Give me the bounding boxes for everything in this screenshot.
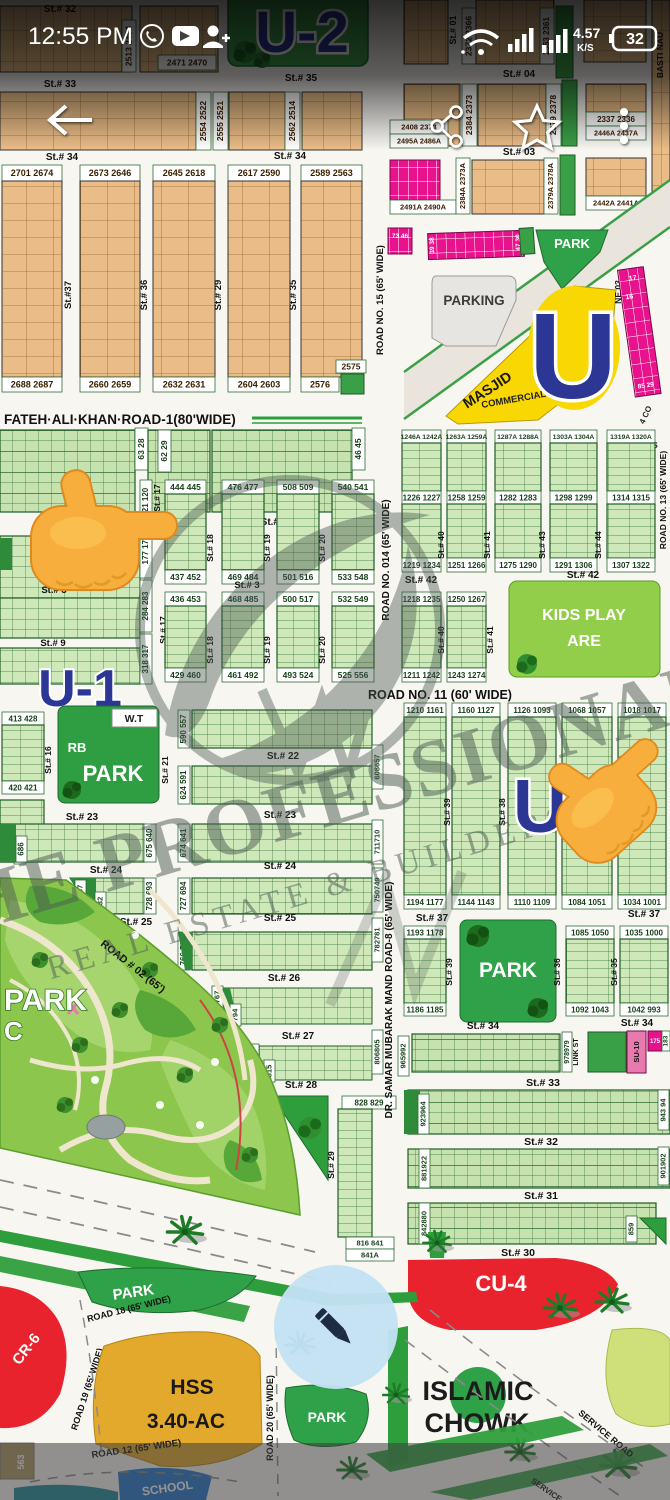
svg-text:St.# 33: St.# 33 <box>526 1077 560 1089</box>
svg-text:St.# 44: St.# 44 <box>593 531 603 559</box>
svg-text:1282 1283: 1282 1283 <box>499 493 537 502</box>
svg-text:SU-10: SU-10 <box>632 1041 641 1062</box>
svg-text:1085 1050: 1085 1050 <box>571 928 609 937</box>
svg-text:ROAD NO. 15 (65' WIDE): ROAD NO. 15 (65' WIDE) <box>375 245 386 355</box>
svg-text:St.# 36: St.# 36 <box>552 958 562 986</box>
svg-text:FATEH·ALI·KHAN·ROAD-1(80'WIDE): FATEH·ALI·KHAN·ROAD-1(80'WIDE) <box>4 412 236 427</box>
svg-text:St.# 42: St.# 42 <box>567 570 600 581</box>
svg-text:St.# 21: St.# 21 <box>160 756 170 784</box>
svg-text:St.#37: St.#37 <box>63 281 74 309</box>
svg-text:2673 2646: 2673 2646 <box>89 168 132 178</box>
svg-text:1034 1001: 1034 1001 <box>623 898 661 907</box>
svg-text:St.# 17: St.# 17 <box>152 484 162 512</box>
svg-text:PARK: PARK <box>479 959 537 982</box>
svg-text:LINK ST: LINK ST <box>573 1038 580 1066</box>
svg-text:PARK: PARK <box>554 236 590 251</box>
svg-text:St.# 39: St.# 39 <box>444 958 454 986</box>
svg-text:PARK: PARK <box>4 984 87 1017</box>
svg-text:1194 1177: 1194 1177 <box>407 898 444 907</box>
svg-text:63 28: 63 28 <box>136 438 146 460</box>
svg-text:21 120: 21 120 <box>141 487 150 512</box>
svg-text:ROAD NO. 13 (65' WIDE): ROAD NO. 13 (65' WIDE) <box>658 451 668 550</box>
svg-text:St.# 43: St.# 43 <box>537 531 547 559</box>
svg-text:1298 1299: 1298 1299 <box>555 493 593 502</box>
svg-text:16: 16 <box>625 293 634 301</box>
svg-text:St.# 34: St.# 34 <box>274 151 307 162</box>
svg-text:St.# 31: St.# 31 <box>524 1190 558 1202</box>
svg-text:1251 1266: 1251 1266 <box>448 561 486 570</box>
svg-text:39 38: 39 38 <box>429 237 437 254</box>
svg-text:K/S: K/S <box>577 43 594 54</box>
svg-text:12:55 PM: 12:55 PM <box>28 23 133 50</box>
svg-text:1291 1306: 1291 1306 <box>555 561 593 570</box>
svg-text:St.# 23: St.# 23 <box>66 812 99 823</box>
svg-text:841A: 841A <box>361 1251 380 1260</box>
svg-text:1243 1274: 1243 1274 <box>448 671 486 680</box>
svg-text:32: 32 <box>626 31 644 48</box>
svg-text:859: 859 <box>626 1223 635 1236</box>
svg-text:500 517: 500 517 <box>283 594 314 604</box>
svg-text:1042 993: 1042 993 <box>627 1005 661 1014</box>
svg-text:St.# 27: St.# 27 <box>282 1031 315 1042</box>
svg-text:St.# 30: St.# 30 <box>501 1247 535 1259</box>
svg-text:436 453: 436 453 <box>170 594 201 604</box>
svg-text:2632 2631: 2632 2631 <box>163 380 206 390</box>
svg-text:2604 2603: 2604 2603 <box>238 380 281 390</box>
svg-text:1307 1322: 1307 1322 <box>612 561 650 570</box>
svg-text:901902: 901902 <box>658 1153 667 1178</box>
svg-text:2617 2590: 2617 2590 <box>238 168 281 178</box>
svg-text:2589 2563: 2589 2563 <box>310 168 353 178</box>
svg-text:62 29: 62 29 <box>159 440 169 462</box>
svg-text:533 548: 533 548 <box>338 572 369 582</box>
svg-text:1263A 1259A: 1263A 1259A <box>446 434 488 441</box>
svg-text:St.# 35: St.# 35 <box>288 279 299 310</box>
svg-text:782781: 782781 <box>372 927 381 952</box>
svg-text:1035 1000: 1035 1000 <box>625 928 663 937</box>
svg-text:PARK: PARK <box>83 761 144 786</box>
svg-text:St.# 26: St.# 26 <box>268 973 301 984</box>
svg-text:St.# 34: St.# 34 <box>467 1021 500 1032</box>
svg-text:461 492: 461 492 <box>228 670 259 680</box>
svg-text:175: 175 <box>650 1039 661 1045</box>
svg-text:St.# 40: St.# 40 <box>436 531 446 559</box>
svg-text:46 45: 46 45 <box>353 438 363 460</box>
svg-text:St.# 34: St.# 34 <box>46 152 79 163</box>
svg-text:73 46: 73 46 <box>392 233 409 240</box>
svg-text:1250 1267: 1250 1267 <box>448 595 486 604</box>
svg-text:1186 1185: 1186 1185 <box>407 1005 444 1014</box>
svg-text:St.# 28: St.# 28 <box>285 1080 318 1091</box>
svg-text:St.# 35: St.# 35 <box>609 958 619 986</box>
svg-text:W.T: W.T <box>125 713 144 725</box>
svg-text:183: 183 <box>663 1035 670 1046</box>
svg-text:2491A 2490A: 2491A 2490A <box>400 203 447 212</box>
svg-text:842880: 842880 <box>419 1211 428 1236</box>
svg-text:420 421: 420 421 <box>9 783 38 792</box>
svg-text:ISLAMIC: ISLAMIC <box>423 1376 534 1406</box>
svg-text:828 829: 828 829 <box>355 1098 384 1107</box>
svg-text:St.# 32: St.# 32 <box>524 1136 558 1148</box>
svg-text:816 841: 816 841 <box>356 1239 383 1248</box>
svg-text:1303A 1304A: 1303A 1304A <box>553 434 595 441</box>
svg-text:2575: 2575 <box>342 362 361 372</box>
svg-text:943 94: 943 94 <box>658 1098 667 1122</box>
svg-text:1319A 1320A: 1319A 1320A <box>610 434 652 441</box>
svg-text:ARE: ARE <box>567 633 601 650</box>
svg-text:KIDS PLAY: KIDS PLAY <box>542 607 626 624</box>
svg-text:CU-4: CU-4 <box>475 1271 527 1296</box>
svg-text:St.# 19: St.# 19 <box>262 636 272 664</box>
svg-text:St.# 16: St.# 16 <box>43 746 53 774</box>
svg-text:2701 2674: 2701 2674 <box>11 168 54 178</box>
svg-text:3.40-AC: 3.40-AC <box>147 1410 225 1433</box>
svg-text:4.57: 4.57 <box>573 25 600 41</box>
svg-text:413 428: 413 428 <box>9 714 38 723</box>
svg-text:St.# 18: St.# 18 <box>205 534 215 562</box>
svg-text:1226 1227: 1226 1227 <box>403 493 441 502</box>
svg-text:2384A 2373A: 2384A 2373A <box>458 162 467 209</box>
svg-text:PARKING: PARKING <box>443 293 504 308</box>
svg-text:1144 1143: 1144 1143 <box>458 898 495 907</box>
svg-text:806805: 806805 <box>372 1039 381 1064</box>
svg-text:711710: 711710 <box>372 830 381 855</box>
svg-text:U: U <box>529 288 617 424</box>
svg-text:St.# 29: St.# 29 <box>213 280 224 311</box>
svg-text:978979: 978979 <box>564 1040 571 1063</box>
svg-text:PARK: PARK <box>308 1409 347 1425</box>
svg-text:444 445: 444 445 <box>170 482 201 492</box>
svg-text:2660 2659: 2660 2659 <box>89 380 132 390</box>
svg-text:St.# 37: St.# 37 <box>628 909 661 920</box>
svg-text:437 452: 437 452 <box>170 572 201 582</box>
svg-text:17: 17 <box>628 275 637 283</box>
svg-text:St.# 29: St.# 29 <box>326 1151 336 1179</box>
svg-text:1246A 1242A: 1246A 1242A <box>401 434 443 441</box>
svg-text:1287A 1288A: 1287A 1288A <box>497 434 539 441</box>
svg-text:C: C <box>4 1016 23 1046</box>
svg-text:St.# 41: St.# 41 <box>485 626 495 654</box>
svg-text:1110 1109: 1110 1109 <box>514 898 551 907</box>
svg-text:1275 1290: 1275 1290 <box>499 561 537 570</box>
svg-text:965992: 965992 <box>398 1043 407 1068</box>
svg-text:RB: RB <box>68 740 87 755</box>
svg-text:532 549: 532 549 <box>338 594 369 604</box>
svg-text:St.# 34: St.# 34 <box>621 1018 654 1029</box>
svg-text:1258 1259: 1258 1259 <box>448 493 486 502</box>
svg-text:St.# 19: St.# 19 <box>262 534 272 562</box>
svg-text:2645 2618: 2645 2618 <box>163 168 206 178</box>
svg-text:HSS: HSS <box>170 1376 213 1399</box>
svg-text:St.# 36: St.# 36 <box>139 280 150 311</box>
svg-text:2576: 2576 <box>310 380 330 390</box>
svg-text:2379A 2378A: 2379A 2378A <box>546 162 555 209</box>
svg-text:1092 1043: 1092 1043 <box>571 1005 609 1014</box>
svg-text:St.# 41: St.# 41 <box>482 531 492 559</box>
svg-text:1314 1315: 1314 1315 <box>612 493 650 502</box>
svg-text:St.# 20: St.# 20 <box>317 636 327 664</box>
svg-text:493 524: 493 524 <box>283 670 314 680</box>
svg-text:923964: 923964 <box>418 1101 427 1127</box>
svg-text:1084 1051: 1084 1051 <box>568 898 606 907</box>
svg-text:2688 2687: 2688 2687 <box>11 380 54 390</box>
svg-text:St.# 9: St.# 9 <box>40 638 65 649</box>
svg-text:881922: 881922 <box>419 1156 428 1181</box>
